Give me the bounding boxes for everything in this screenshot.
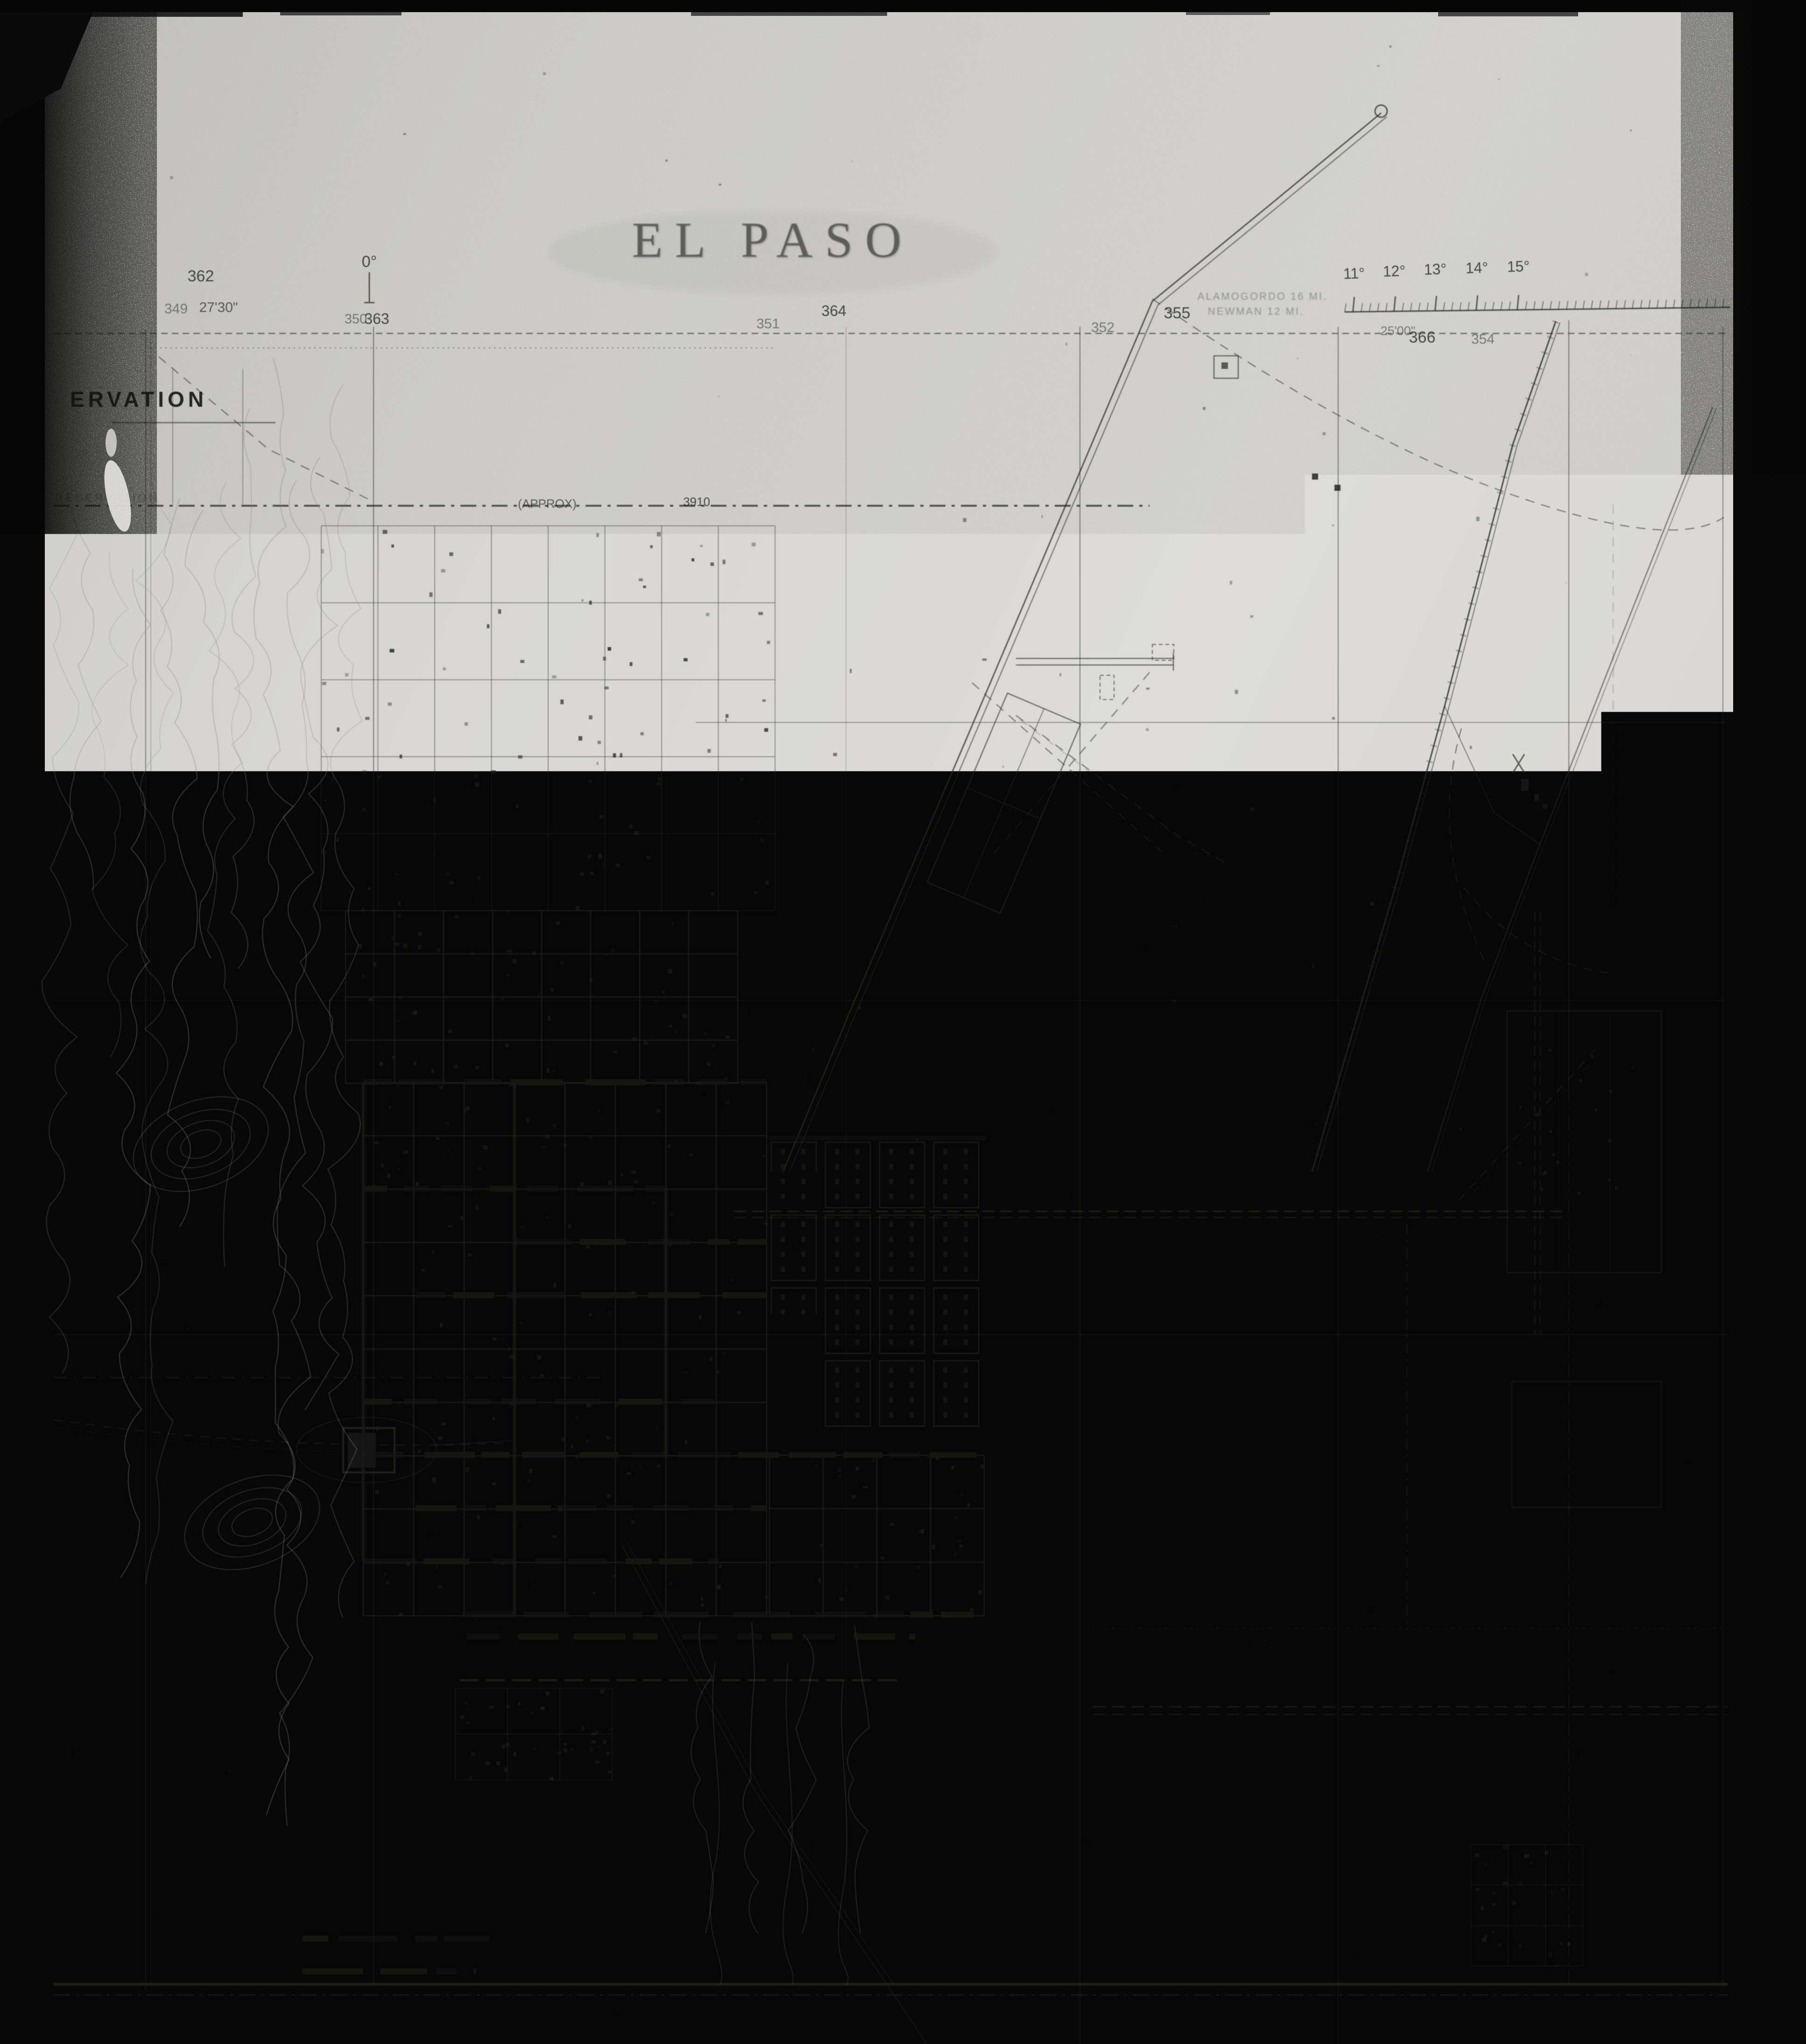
elevation: 3902 bbox=[983, 652, 1012, 667]
declination-degree: 12° bbox=[1383, 262, 1406, 281]
grid-number: 366 bbox=[1409, 329, 1436, 347]
grid-number: 364 bbox=[821, 303, 846, 320]
map-title: EL PASO bbox=[632, 212, 913, 269]
declination-degree: 14° bbox=[1465, 259, 1489, 277]
fort-bliss-large-label: FORT bbox=[1359, 1574, 1602, 1608]
benchmark: BM bbox=[1571, 794, 1586, 805]
fort-bliss-label: RESERVATION bbox=[1003, 1343, 1184, 1368]
cemetery-abbrev: Cem bbox=[1124, 646, 1147, 658]
boundary-label: RESERVATION bbox=[626, 1661, 740, 1676]
pumping-station-label: Pumping station bbox=[1489, 740, 1566, 752]
fort-bliss-large-label: B bbox=[1643, 1589, 1660, 1619]
longitude-label: 27'30" bbox=[199, 300, 238, 316]
boundary-label: RESERVATION bbox=[1306, 1473, 1384, 1579]
grid-number: 350 bbox=[345, 312, 367, 327]
approx-boundary-label: (APPROX) bbox=[518, 497, 577, 511]
elevation: 3885 bbox=[1245, 835, 1274, 850]
railroad-name: PACIFIC bbox=[1663, 636, 1709, 698]
road-name: LANES bbox=[947, 744, 978, 792]
declination-zero: 0° bbox=[362, 253, 377, 271]
map-labels: EL PASO 3620°34927'30"350363351364352355… bbox=[0, 0, 1806, 2044]
golf-course-label: El Paso Golf Course bbox=[827, 1670, 924, 1683]
elevation: 3885 bbox=[1590, 1287, 1619, 1302]
declination-degree: 13° bbox=[1424, 261, 1447, 279]
cemetery-abbrev: Cem bbox=[1106, 672, 1129, 685]
grid-number: 354 bbox=[1471, 332, 1495, 347]
boundary-label: RESERVATION bbox=[954, 2001, 1081, 2016]
benchmark-elevation: 3883 bbox=[1577, 808, 1599, 819]
grid-number: 363 bbox=[364, 311, 389, 328]
publishing-plant-label: Publishing plant bbox=[225, 1452, 301, 1465]
elevation: 4002 bbox=[577, 787, 608, 803]
elevation: 3880 bbox=[1009, 1499, 1034, 1530]
railroad-name: SOUTHERN bbox=[1351, 1143, 1399, 1234]
fort-bliss-label: MILITARY bbox=[1032, 1304, 1151, 1330]
boundary-label: RESERVATION bbox=[972, 1218, 1111, 1234]
grid-number: 355 bbox=[1164, 304, 1191, 323]
boundary-label: MILITARY bbox=[525, 1663, 600, 1678]
boundary-label: MILITARY bbox=[1093, 1663, 1149, 1736]
fort-bliss-large-label: MILIT bbox=[1425, 1678, 1674, 1712]
road-destination: NEWMAN 12 MI. bbox=[1208, 305, 1304, 318]
cemetery-name: Restlawn Cemetery bbox=[1009, 767, 1103, 780]
scanned-map-sheet: EL PASO 3620°34927'30"350363351364352355… bbox=[0, 0, 1806, 2044]
reservation-edge-label: RESERVATION bbox=[55, 492, 159, 505]
elevation: 3910 bbox=[683, 495, 710, 509]
road-destination: ALAMOGORDO 16 MI. bbox=[1198, 290, 1327, 303]
elevation: 3949 bbox=[609, 2001, 641, 2017]
grid-number: 362 bbox=[188, 268, 214, 286]
grid-number: 352 bbox=[1091, 320, 1115, 336]
grid-number: 349 bbox=[164, 301, 188, 317]
elevation: 3936 bbox=[724, 1166, 753, 1181]
fort-bliss-label: FORT BLISS bbox=[1018, 1266, 1171, 1291]
elevation: 3871 bbox=[1229, 1289, 1258, 1304]
fort-bliss-large-label: RESERVA bbox=[1311, 1749, 1708, 1787]
declination-degree: 11° bbox=[1343, 265, 1365, 283]
boundary-label: MILITARY bbox=[794, 1221, 887, 1237]
reservation-edge-label: ERVATION bbox=[70, 387, 207, 412]
declination-degree: 15° bbox=[1507, 258, 1530, 276]
grid-number: 351 bbox=[756, 316, 780, 332]
